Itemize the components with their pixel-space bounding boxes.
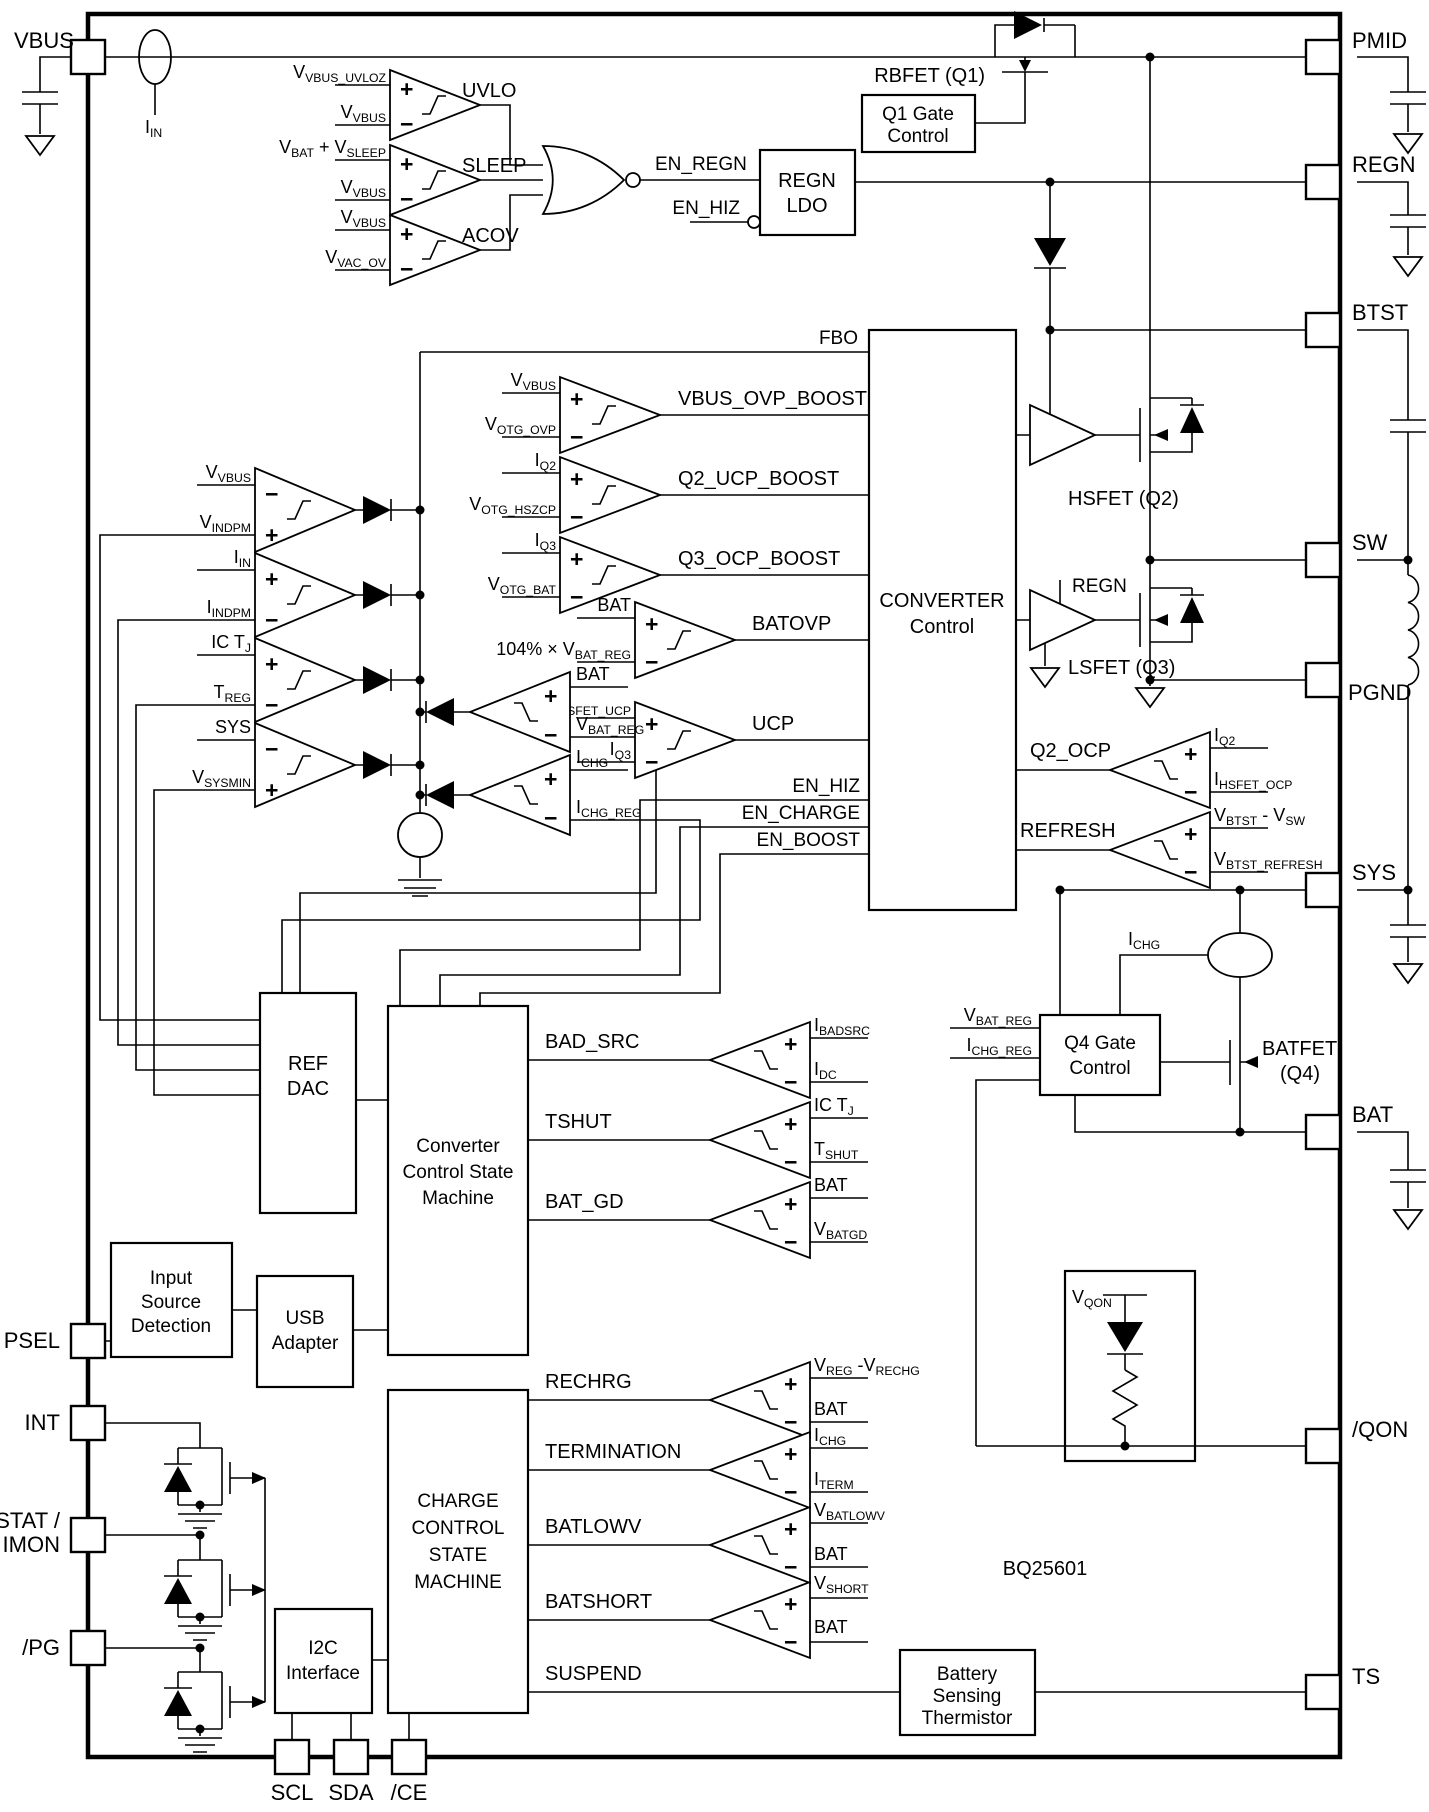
- svg-text:−: −: [400, 256, 413, 282]
- nor-bubble-icon: [626, 173, 640, 187]
- svg-text:+: +: [645, 611, 658, 637]
- pin-sda: [334, 1740, 368, 1774]
- svg-text:+: +: [570, 466, 583, 492]
- blocks: [111, 95, 1195, 1735]
- svg-text:CONTROL: CONTROL: [412, 1518, 505, 1539]
- svg-text:TSHUT: TSHUT: [545, 1111, 612, 1133]
- comparator-termination: + − ICHG ITERM TERMINATION: [545, 1425, 854, 1508]
- q2-body-diode-icon: [1180, 407, 1204, 433]
- q1-body-arrow-icon: [1019, 60, 1031, 72]
- svg-text:RECHRG: RECHRG: [545, 1371, 632, 1393]
- label-vqon: VQON: [1072, 1287, 1112, 1310]
- svg-text:Input: Input: [150, 1268, 193, 1289]
- comparator-bat-gd: + − BAT VBATGD BAT_GD: [545, 1175, 867, 1258]
- svg-text:REGN: REGN: [778, 170, 836, 192]
- svg-text:−: −: [544, 722, 557, 748]
- block-usb-adapter: [257, 1276, 353, 1387]
- svg-text:Machine: Machine: [422, 1188, 494, 1209]
- svg-text:Source: Source: [141, 1292, 201, 1313]
- svg-text:IQ2: IQ2: [535, 450, 557, 473]
- svg-text:−: −: [570, 584, 583, 610]
- pin-label-stat2: IMON: [3, 1532, 60, 1557]
- pin-label-pmid: PMID: [1352, 28, 1407, 53]
- svg-text:−: −: [784, 1229, 797, 1255]
- svg-text:BAT: BAT: [597, 595, 631, 615]
- vqon-diode-icon: [1107, 1322, 1143, 1352]
- svg-text:IQ3: IQ3: [610, 739, 632, 762]
- comparator-uvlo: + − VVBUS_UVLOZ VVBUS UVLO: [293, 62, 516, 140]
- svg-text:IHSFET_OCP: IHSFET_OCP: [1214, 769, 1292, 792]
- svg-text:TSHUT: TSHUT: [814, 1139, 859, 1162]
- svg-text:UCP: UCP: [752, 713, 794, 735]
- pin-btst: [1306, 313, 1340, 347]
- charge-current-sense-icon: [1208, 933, 1272, 977]
- ground-icon: [1394, 964, 1422, 983]
- svg-text:Q3_OCP_BOOST: Q3_OCP_BOOST: [678, 548, 840, 570]
- label-ichg-sense: ICHG: [1128, 929, 1160, 952]
- pin-pgnd: [1306, 663, 1340, 697]
- error-amp-vindpm: − + VVBUS VINDPM: [200, 462, 355, 552]
- pin-label-regn: REGN: [1352, 152, 1416, 177]
- label-en-hiz: EN_HIZ: [792, 776, 860, 797]
- q2-body-arrow-icon: [1154, 429, 1168, 441]
- pin-sys: [1306, 873, 1340, 907]
- svg-text:DAC: DAC: [287, 1078, 329, 1100]
- svg-text:Q2_UCP_BOOST: Q2_UCP_BOOST: [678, 468, 839, 490]
- svg-text:CHARGE: CHARGE: [417, 1491, 498, 1512]
- svg-text:VREG -VRECHG: VREG -VRECHG: [814, 1355, 920, 1378]
- svg-text:Interface: Interface: [286, 1663, 360, 1684]
- svg-text:ACOV: ACOV: [462, 225, 519, 247]
- svg-text:−: −: [784, 1629, 797, 1655]
- ground-icon: [1394, 134, 1422, 153]
- pin-psel: [71, 1324, 105, 1358]
- current-source-icon: [398, 813, 442, 857]
- svg-text:I2C: I2C: [308, 1638, 338, 1659]
- svg-text:REF: REF: [288, 1053, 328, 1075]
- svg-text:+: +: [784, 1191, 797, 1217]
- error-amp-treg: + − IC TJ TREG: [211, 632, 355, 722]
- svg-text:+: +: [784, 1591, 797, 1617]
- label-suspend: SUSPEND: [545, 1663, 642, 1685]
- svg-text:BAT: BAT: [814, 1175, 848, 1195]
- svg-text:TREG: TREG: [213, 682, 251, 705]
- pin-ce: [392, 1740, 426, 1774]
- inductor-icon: [1408, 575, 1419, 685]
- lsfet-driver-icon: [1030, 590, 1095, 650]
- svg-text:SLEEP: SLEEP: [462, 155, 526, 177]
- svg-text:STATE: STATE: [429, 1545, 487, 1566]
- q3-body-arrow-icon: [1154, 614, 1168, 626]
- svg-text:+: +: [400, 151, 413, 177]
- svg-text:+: +: [544, 766, 557, 792]
- label-hsfet: HSFET (Q2): [1068, 488, 1179, 510]
- svg-text:ICHG_REG: ICHG_REG: [576, 797, 642, 820]
- diode-icon: [363, 496, 391, 524]
- pin-sw: [1306, 543, 1340, 577]
- wires: [22, 18, 1426, 1752]
- comparator-vbus-ovp-boost: + − VVBUS VOTG_OVP VBUS_OVP_BOOST: [485, 370, 867, 453]
- svg-text:BAD_SRC: BAD_SRC: [545, 1031, 639, 1053]
- diode-icon: [426, 698, 454, 726]
- ground-icon: [26, 136, 54, 155]
- svg-text:ICHG: ICHG: [814, 1425, 846, 1448]
- comparator-rechrg: + − VREG -VRECHG BAT RECHRG: [545, 1355, 920, 1438]
- svg-text:TERMINATION: TERMINATION: [545, 1441, 681, 1463]
- label-lsfet: LSFET (Q3): [1068, 657, 1175, 679]
- svg-text:+: +: [784, 1441, 797, 1467]
- svg-text:IQ2: IQ2: [1214, 725, 1236, 748]
- hsfet-driver-icon: [1030, 405, 1095, 465]
- svg-text:−: −: [400, 186, 413, 212]
- svg-text:+: +: [570, 386, 583, 412]
- nor-gate-icon: [543, 146, 624, 214]
- esd-diode-icon: [164, 1466, 192, 1492]
- svg-text:Adapter: Adapter: [272, 1333, 339, 1354]
- svg-text:+: +: [570, 546, 583, 572]
- labels: VBUS PSEL INT STAT / IMON /PG PMID REGN …: [0, 28, 1416, 1805]
- pin-bat: [1306, 1115, 1340, 1149]
- svg-text:REFRESH: REFRESH: [1020, 820, 1116, 842]
- svg-text:VVBUS: VVBUS: [206, 462, 251, 485]
- svg-text:VBTST - VSW: VBTST - VSW: [1214, 805, 1305, 828]
- gate-arrow-icon: [252, 1696, 266, 1708]
- pin-scl: [275, 1740, 309, 1774]
- svg-text:Converter: Converter: [416, 1136, 500, 1157]
- svg-text:VBATGD: VBATGD: [814, 1219, 867, 1242]
- svg-text:IINDPM: IINDPM: [207, 597, 251, 620]
- esd-diode-icon: [164, 1578, 192, 1604]
- pin-ts: [1306, 1675, 1340, 1709]
- gate-arrow-icon: [252, 1584, 266, 1596]
- label-rbfet: RBFET (Q1): [874, 65, 985, 87]
- svg-text:+: +: [400, 76, 413, 102]
- svg-text:VBUS_OVP_BOOST: VBUS_OVP_BOOST: [678, 388, 867, 410]
- svg-text:+: +: [784, 1111, 797, 1137]
- inverter-bubble-icon: [748, 216, 760, 228]
- block-regn-ldo: [760, 150, 855, 235]
- diode-icon: [363, 666, 391, 694]
- svg-text:−: −: [265, 692, 278, 718]
- svg-text:−: −: [784, 1554, 797, 1580]
- svg-text:+: +: [265, 566, 278, 592]
- svg-text:+: +: [400, 221, 413, 247]
- pin-label-btst: BTST: [1352, 300, 1408, 325]
- block-diagram: + − VVBUS_UVLOZ VVBUS UVLO + − VBAT + VS…: [0, 0, 1429, 1807]
- svg-text:USB: USB: [285, 1308, 324, 1329]
- svg-text:+: +: [784, 1371, 797, 1397]
- svg-text:VOTG_HSZCP: VOTG_HSZCP: [469, 494, 556, 517]
- svg-text:IC TJ: IC TJ: [814, 1095, 854, 1118]
- comparator-q2-ucp-boost: + − IQ2 VOTG_HSZCP Q2_UCP_BOOST: [469, 450, 839, 533]
- svg-text:−: −: [570, 504, 583, 530]
- error-amp-iindpm: + − IIN IINDPM: [207, 547, 355, 637]
- label-en-regn: EN_REGN: [655, 154, 747, 175]
- svg-text:−: −: [265, 481, 278, 507]
- svg-text:VSYSMIN: VSYSMIN: [192, 767, 251, 790]
- svg-text:+: +: [265, 651, 278, 677]
- svg-text:SYS: SYS: [215, 717, 251, 737]
- svg-text:−: −: [784, 1479, 797, 1505]
- svg-text:BAT: BAT: [814, 1544, 848, 1564]
- svg-text:Q1 Gate: Q1 Gate: [882, 104, 954, 125]
- esd-diode-icon: [164, 1690, 192, 1716]
- pin-vbus: [71, 40, 105, 74]
- pin-label-psel: PSEL: [4, 1328, 60, 1353]
- pin-label-bat: BAT: [1352, 1102, 1393, 1127]
- ic-boundary: [88, 14, 1340, 1757]
- svg-text:LDO: LDO: [786, 195, 827, 217]
- svg-text:BATOVP: BATOVP: [752, 613, 831, 635]
- comparator-batovp: + − BAT 104% × VBAT_REG BATOVP: [496, 595, 831, 678]
- svg-text:UVLO: UVLO: [462, 80, 516, 102]
- pin-pmid: [1306, 40, 1340, 74]
- comparator-batlowv: + − VBATLOWV BAT BATLOWV: [545, 1500, 886, 1583]
- svg-text:−: −: [265, 607, 278, 633]
- svg-text:VVBUS: VVBUS: [341, 177, 386, 200]
- svg-text:IBADSRC: IBADSRC: [814, 1015, 870, 1038]
- svg-text:BATLOWV: BATLOWV: [545, 1516, 642, 1538]
- label-en-charge: EN_CHARGE: [742, 803, 860, 824]
- ground-icon: [1136, 688, 1164, 707]
- comparator-q3-ocp-boost: + − IQ3 VOTG_BAT Q3_OCP_BOOST: [488, 530, 841, 613]
- ground-icon: [1394, 1210, 1422, 1229]
- label-q4-ichg-reg: ICHG_REG: [966, 1035, 1032, 1058]
- pin-qon: [1306, 1429, 1340, 1463]
- svg-text:VVBUS: VVBUS: [341, 102, 386, 125]
- pin-label-sw: SW: [1352, 530, 1388, 555]
- label-q4-vbat-reg: VBAT_REG: [964, 1005, 1032, 1028]
- svg-text:−: −: [265, 736, 278, 762]
- svg-text:IDC: IDC: [814, 1059, 837, 1082]
- svg-text:BAT: BAT: [576, 664, 610, 684]
- label-batfet-q4: (Q4): [1280, 1063, 1320, 1085]
- pin-label-int: INT: [25, 1410, 60, 1435]
- svg-text:VBATLOWV: VBATLOWV: [814, 1500, 886, 1523]
- svg-text:BAT: BAT: [814, 1399, 848, 1419]
- pin-label-pgnd: PGND: [1348, 680, 1412, 705]
- comparator-batshort: + − VSHORT BAT BATSHORT: [545, 1573, 869, 1658]
- diode-icon: [363, 581, 391, 609]
- pin-label-stat1: STAT /: [0, 1508, 61, 1533]
- svg-text:−: −: [570, 424, 583, 450]
- error-amp-vsysmin: − + SYS VSYSMIN: [192, 717, 355, 807]
- svg-text:BAT: BAT: [814, 1617, 848, 1637]
- svg-text:IIN: IIN: [234, 547, 251, 570]
- svg-text:IQ3: IQ3: [535, 530, 557, 553]
- block-ref-dac: [260, 993, 356, 1213]
- svg-text:Q2_OCP: Q2_OCP: [1030, 740, 1111, 762]
- svg-text:Thermistor: Thermistor: [922, 1708, 1013, 1729]
- svg-text:Detection: Detection: [131, 1316, 211, 1337]
- pin-label-ce: /CE: [391, 1780, 428, 1805]
- svg-text:−: −: [400, 111, 413, 137]
- svg-text:Control: Control: [1069, 1058, 1130, 1079]
- svg-text:+: +: [544, 683, 557, 709]
- regn-btst-diode-icon: [1034, 238, 1066, 266]
- svg-text:Control: Control: [910, 616, 974, 638]
- chip-name: BQ25601: [1003, 1558, 1088, 1580]
- q3-body-diode-icon: [1180, 597, 1204, 623]
- svg-text:+: +: [784, 1031, 797, 1057]
- q4-body-arrow-icon: [1244, 1056, 1258, 1068]
- gate-arrow-icon: [252, 1472, 266, 1484]
- comparators: + − VVBUS_UVLOZ VVBUS UVLO + − VBAT + VS…: [192, 62, 1322, 1658]
- pin-label-scl: SCL: [271, 1780, 314, 1805]
- diode-icon: [426, 781, 454, 809]
- label-regn-drv: REGN: [1072, 576, 1127, 597]
- svg-text:+: +: [265, 777, 278, 803]
- svg-text:Q4 Gate: Q4 Gate: [1064, 1033, 1136, 1054]
- pin-label-pg: /PG: [22, 1635, 60, 1660]
- pin-label-ts: TS: [1352, 1664, 1380, 1689]
- pin-int: [71, 1406, 105, 1440]
- svg-text:Control: Control: [887, 126, 948, 147]
- svg-text:VVBUS_UVLOZ: VVBUS_UVLOZ: [293, 62, 386, 85]
- svg-text:Battery: Battery: [937, 1664, 998, 1685]
- diode-icon: [363, 751, 391, 779]
- svg-text:−: −: [784, 1069, 797, 1095]
- comparator-sleep: + − VBAT + VSLEEP VVBUS SLEEP: [279, 137, 526, 215]
- ground-icon: [1031, 668, 1059, 687]
- svg-text:+: +: [645, 711, 658, 737]
- svg-text:VBTST_REFRESH: VBTST_REFRESH: [1214, 849, 1323, 872]
- svg-text:−: −: [645, 649, 658, 675]
- svg-text:+: +: [1184, 741, 1197, 767]
- pin-pg: [71, 1631, 105, 1665]
- svg-text:MACHINE: MACHINE: [414, 1572, 502, 1593]
- svg-text:+: +: [1184, 821, 1197, 847]
- svg-text:−: −: [784, 1409, 797, 1435]
- ground-icon: [1394, 257, 1422, 276]
- svg-text:−: −: [544, 805, 557, 831]
- svg-text:−: −: [1184, 779, 1197, 805]
- label-batfet: BATFET: [1262, 1038, 1337, 1060]
- svg-text:VOTG_OVP: VOTG_OVP: [485, 414, 556, 437]
- pin-label-qon: /QON: [1352, 1417, 1408, 1442]
- comparator-refresh: + − VBTST - VSW VBTST_REFRESH REFRESH: [1020, 805, 1323, 888]
- svg-text:VVAC_OV: VVAC_OV: [325, 247, 387, 270]
- svg-text:BATSHORT: BATSHORT: [545, 1591, 652, 1613]
- block-i2c-interface: [275, 1609, 372, 1713]
- svg-text:VSHORT: VSHORT: [814, 1573, 869, 1596]
- svg-text:−: −: [645, 749, 658, 775]
- comparator-q2-ocp: + − IQ2 IHSFET_OCP Q2_OCP: [1030, 725, 1292, 808]
- svg-text:VBAT + VSLEEP: VBAT + VSLEEP: [279, 137, 386, 160]
- label-iin: IIN: [145, 117, 162, 140]
- label-en-boost: EN_BOOST: [757, 830, 861, 851]
- comparator-bad-src: + − IBADSRC IDC BAD_SRC: [545, 1015, 870, 1098]
- svg-text:Control State: Control State: [403, 1162, 514, 1183]
- svg-text:Sensing: Sensing: [933, 1686, 1002, 1707]
- svg-text:+: +: [784, 1516, 797, 1542]
- svg-text:+: +: [265, 522, 278, 548]
- svg-text:CONVERTER: CONVERTER: [879, 590, 1004, 612]
- svg-text:BAT_GD: BAT_GD: [545, 1191, 624, 1213]
- block-q4-gate-control: [1040, 1015, 1160, 1095]
- svg-text:VVBUS: VVBUS: [511, 370, 556, 393]
- svg-text:−: −: [1184, 859, 1197, 885]
- pin-label-sys: SYS: [1352, 860, 1396, 885]
- svg-text:VVBUS: VVBUS: [341, 207, 386, 230]
- pin-label-sda: SDA: [328, 1780, 374, 1805]
- label-en-hiz-ldo: EN_HIZ: [672, 198, 740, 219]
- svg-text:−: −: [784, 1149, 797, 1175]
- label-fbo: FBO: [819, 328, 858, 349]
- comparator-acov: + − VVBUS VVAC_OV ACOV: [325, 207, 519, 285]
- comparator-tshut: + − IC TJ TSHUT TSHUT: [545, 1095, 859, 1178]
- svg-text:ITERM: ITERM: [814, 1469, 854, 1492]
- svg-text:104% × VBAT_REG: 104% × VBAT_REG: [496, 639, 631, 662]
- svg-text:ICHG: ICHG: [576, 747, 608, 770]
- pin-stat-imon: [71, 1518, 105, 1552]
- pin-regn: [1306, 165, 1340, 199]
- svg-text:VINDPM: VINDPM: [200, 512, 251, 535]
- svg-text:VOTG_BAT: VOTG_BAT: [488, 574, 557, 597]
- svg-text:IC TJ: IC TJ: [211, 632, 251, 655]
- pin-label-vbus: VBUS: [14, 28, 74, 53]
